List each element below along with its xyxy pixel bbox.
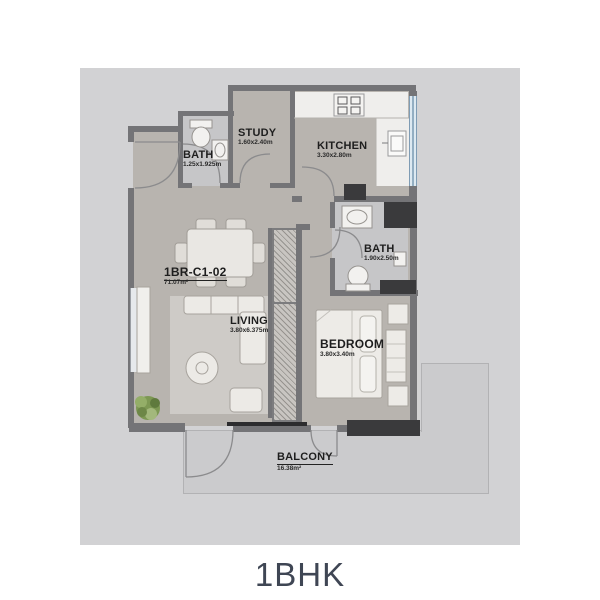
- wall: [410, 200, 417, 426]
- wall: [228, 85, 416, 91]
- unit-label: 1BR-C1-02 71.07m²: [164, 266, 227, 286]
- room-name: LIVING: [230, 315, 268, 327]
- wall: [268, 228, 272, 418]
- living-window: [130, 288, 138, 372]
- wall-dark: [347, 420, 420, 436]
- wall: [292, 196, 302, 202]
- room-name: KITCHEN: [317, 140, 367, 152]
- room-dims: 16.38m²: [277, 465, 333, 472]
- wall: [178, 183, 192, 188]
- living-label: LIVING 3.80x6.375m: [230, 315, 268, 334]
- room-name: BALCONY: [277, 451, 333, 465]
- room-dims: 3.80x3.40m: [320, 351, 384, 358]
- wall: [296, 224, 310, 230]
- wall: [330, 202, 335, 228]
- bath2-label: BATH 1.90x2.50m: [364, 243, 399, 262]
- wall: [233, 425, 311, 432]
- kitchen-window: [409, 96, 417, 186]
- kitchen-label: KITCHEN 3.30x2.80m: [317, 140, 367, 159]
- wall: [330, 258, 335, 294]
- wall: [178, 111, 234, 116]
- room-name: BATH: [364, 243, 399, 255]
- wall: [290, 90, 295, 188]
- wall: [228, 183, 240, 188]
- room-dims: 3.80x6.375m: [230, 327, 268, 334]
- room-dims: 1.90x2.50m: [364, 255, 399, 262]
- bedroom-label: BEDROOM 3.80x3.40m: [320, 338, 384, 358]
- wall-dark: [380, 280, 416, 294]
- sliding-door: [227, 422, 307, 426]
- wall: [270, 183, 292, 188]
- wall: [337, 425, 347, 432]
- wall: [296, 224, 302, 426]
- room-dims: 1.25x1.925m: [183, 161, 221, 168]
- wall: [409, 184, 417, 202]
- floorplan-canvas: BATH 1.25x1.925m STUDY 1.60x2.40m KITCHE…: [0, 0, 600, 600]
- wall-dark: [384, 202, 417, 228]
- balcony-side-floor: [421, 363, 489, 432]
- kitchen-counter-right: [376, 118, 409, 186]
- room-dims: 3.30x2.80m: [317, 152, 367, 159]
- plan-title: 1BHK: [0, 556, 600, 594]
- room-name: STUDY: [238, 127, 276, 139]
- kitchen-appliance-dark: [344, 184, 366, 200]
- study-label: STUDY 1.60x2.40m: [238, 127, 276, 146]
- balcony-label: BALCONY 16.38m²: [277, 451, 333, 472]
- room-name: BATH: [183, 149, 221, 161]
- wall: [129, 423, 185, 432]
- wall: [128, 126, 183, 132]
- room-dims: 1.60x2.40m: [238, 139, 276, 146]
- wall: [228, 85, 233, 188]
- kitchen-counter-top: [294, 92, 408, 118]
- balcony-floor: [183, 430, 489, 494]
- room-name: BEDROOM: [320, 338, 384, 351]
- bath1-label: BATH 1.25x1.925m: [183, 149, 221, 168]
